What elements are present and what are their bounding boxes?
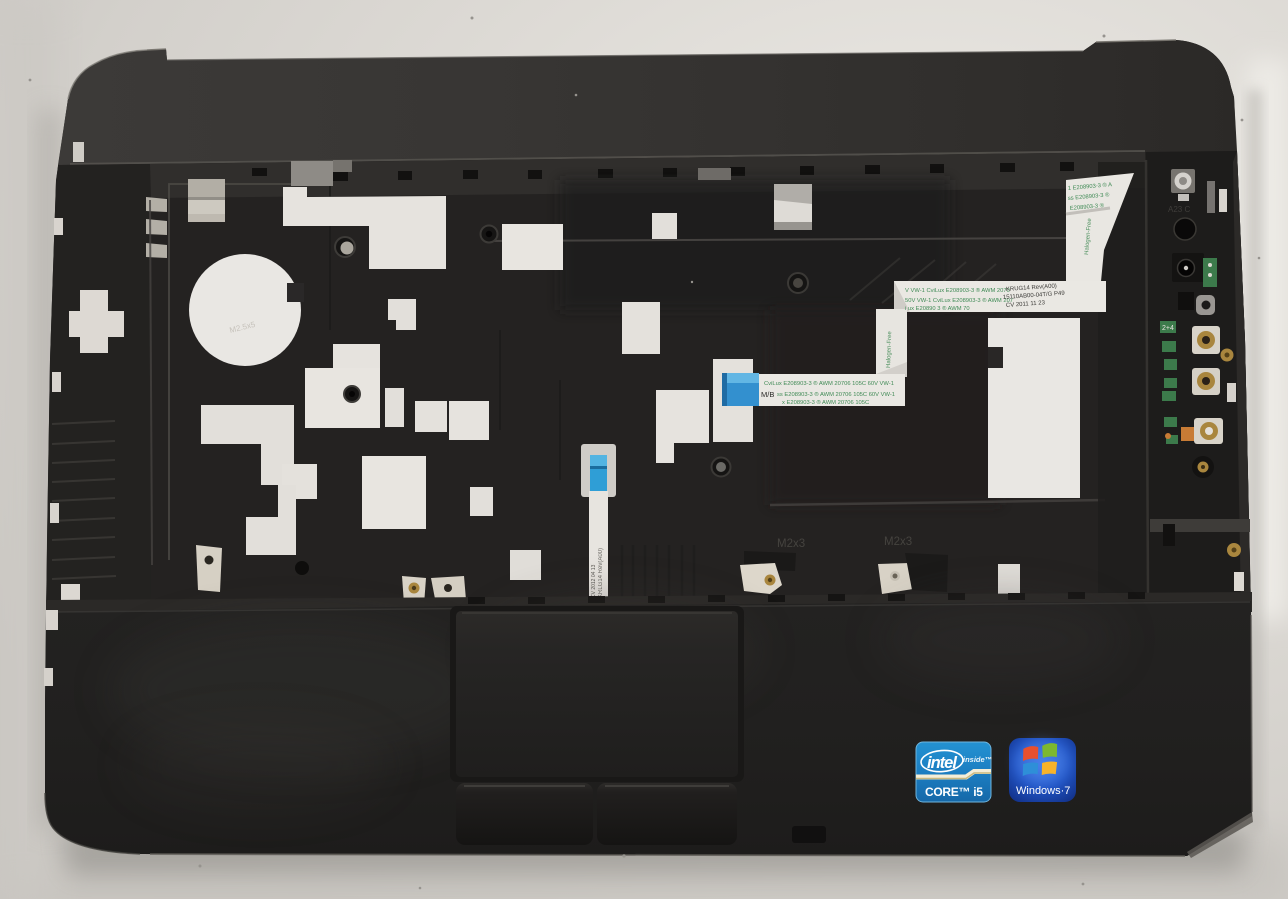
svg-text:V VW-1 CviLux E208903-3 ®: V VW-1 CviLux E208903-3 ® AWM 2070: [905, 287, 1010, 294]
svg-text:inside™: inside™: [963, 755, 992, 764]
svg-text:M2x3: M2x3: [884, 536, 912, 548]
svg-text:ss E208903-3 ® AWM 20706 105C: ss E208903-3 ® AWM 20706 105C 60V VW-1: [777, 391, 895, 398]
svg-text:CV 2012 04 13: CV 2012 04 13: [591, 564, 597, 598]
svg-text:2+4: 2+4: [1162, 325, 1174, 332]
svg-text:M/B: M/B: [761, 390, 774, 399]
svg-text:50V VW-1 CviLux E208903-3 ®: 50V VW-1 CviLux E208903-3 ® AWM 207: [905, 297, 1013, 304]
svg-text:CviLux E208903-3 ® AWM 20706: CviLux E208903-3 ® AWM 20706 105C 60V VW…: [764, 380, 894, 387]
svg-text:x E208903-3 ® AWM 20706 105C: x E208903-3 ® AWM 20706 105C: [782, 399, 869, 406]
svg-text:CORE™ i5: CORE™ i5: [925, 785, 983, 799]
svg-text:i ux E20890 3 ® AWM 70: i ux E20890 3 ® AWM 70: [905, 305, 970, 312]
svg-text:KRLG14 Rev(A00): KRLG14 Rev(A00): [598, 548, 604, 598]
svg-text:A23 C: A23 C: [1168, 205, 1190, 214]
svg-text:M2x3: M2x3: [777, 538, 805, 550]
svg-text:Windows·7: Windows·7: [1016, 785, 1070, 797]
